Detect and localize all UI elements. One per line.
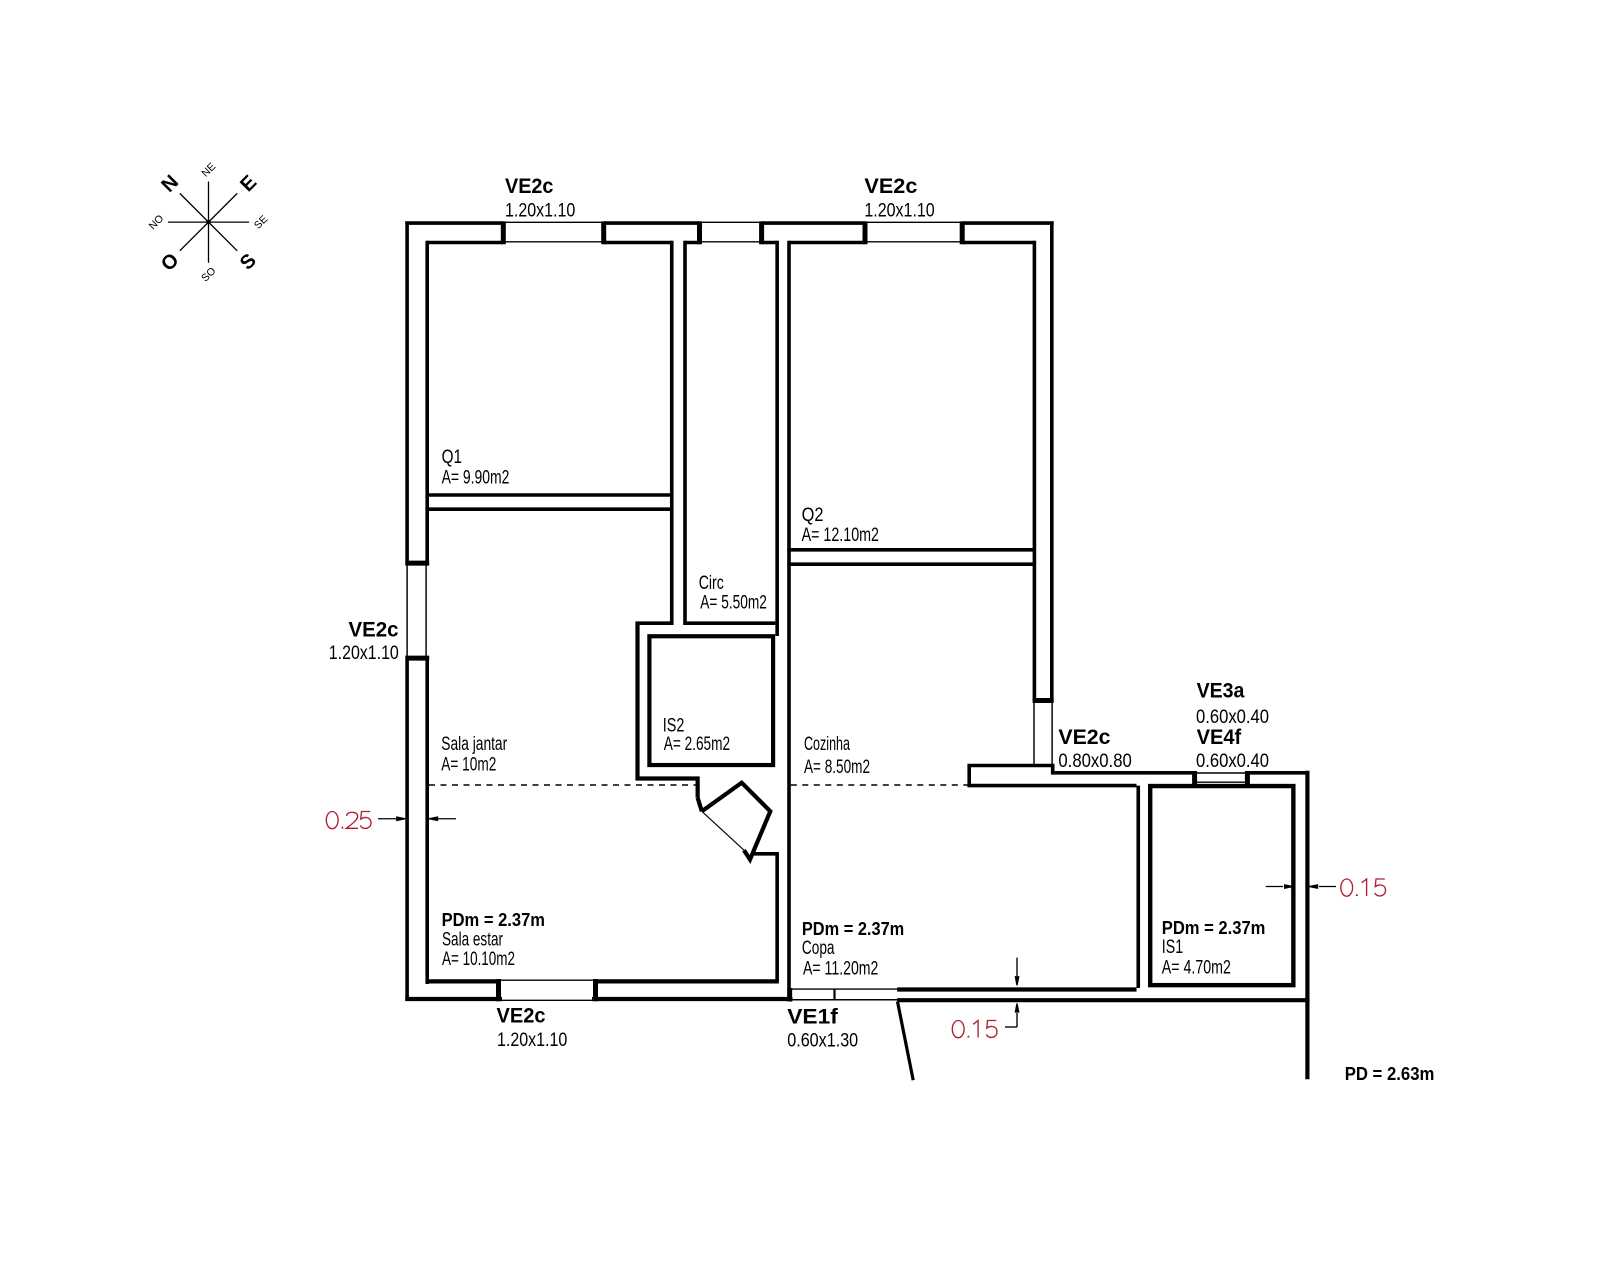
svg-text:VE2c: VE2c	[497, 1005, 546, 1028]
svg-text:A= 10m2: A= 10m2	[441, 755, 496, 776]
svg-text:VE1f: VE1f	[787, 1006, 839, 1029]
svg-text:IS1: IS1	[1162, 937, 1183, 958]
svg-text:Q2: Q2	[802, 505, 824, 526]
svg-text:1.20x1.10: 1.20x1.10	[329, 643, 399, 664]
svg-text:PDm = 2.37m: PDm = 2.37m	[442, 909, 545, 930]
svg-text:0.80x0.80: 0.80x0.80	[1058, 751, 1131, 772]
svg-text:PD = 2.63m: PD = 2.63m	[1345, 1063, 1435, 1084]
svg-text:VE2c: VE2c	[1058, 726, 1110, 749]
svg-text:Circ: Circ	[699, 573, 724, 594]
svg-text:VE3a: VE3a	[1197, 679, 1245, 702]
svg-text:1.20x1.10: 1.20x1.10	[505, 201, 575, 222]
svg-text:A= 11.20m2: A= 11.20m2	[803, 959, 878, 980]
svg-text:Q1: Q1	[442, 447, 462, 468]
svg-text:PDm = 2.37m: PDm = 2.37m	[802, 918, 904, 939]
svg-text:PDm = 2.37m: PDm = 2.37m	[1162, 917, 1266, 938]
svg-text:1.20x1.10: 1.20x1.10	[497, 1030, 567, 1051]
svg-text:VE2c: VE2c	[505, 175, 554, 198]
svg-text:Sala jantar: Sala jantar	[441, 734, 507, 755]
svg-text:0.60x1.30: 0.60x1.30	[787, 1031, 858, 1052]
svg-text:VE4f: VE4f	[1197, 726, 1243, 749]
svg-text:A= 5.50m2: A= 5.50m2	[700, 592, 767, 613]
svg-text:Cozinha: Cozinha	[804, 734, 850, 755]
svg-text:Sala estar: Sala estar	[442, 929, 503, 950]
svg-text:A= 10.10m2: A= 10.10m2	[442, 949, 515, 970]
svg-text:0.60x0.40: 0.60x0.40	[1196, 751, 1269, 772]
svg-text:0.60x0.40: 0.60x0.40	[1196, 707, 1269, 728]
svg-text:Copa: Copa	[802, 938, 835, 959]
svg-text:A= 8.50m2: A= 8.50m2	[804, 757, 870, 778]
svg-text:VE2c: VE2c	[864, 175, 917, 198]
svg-text:A= 4.70m2: A= 4.70m2	[1162, 957, 1231, 978]
svg-text:A= 9.90m2: A= 9.90m2	[442, 467, 510, 488]
svg-text:1.20x1.10: 1.20x1.10	[864, 201, 934, 222]
svg-text:A= 12.10m2: A= 12.10m2	[802, 525, 879, 546]
svg-text:A= 2.65m2: A= 2.65m2	[664, 734, 730, 755]
svg-text:VE2c: VE2c	[349, 618, 399, 641]
